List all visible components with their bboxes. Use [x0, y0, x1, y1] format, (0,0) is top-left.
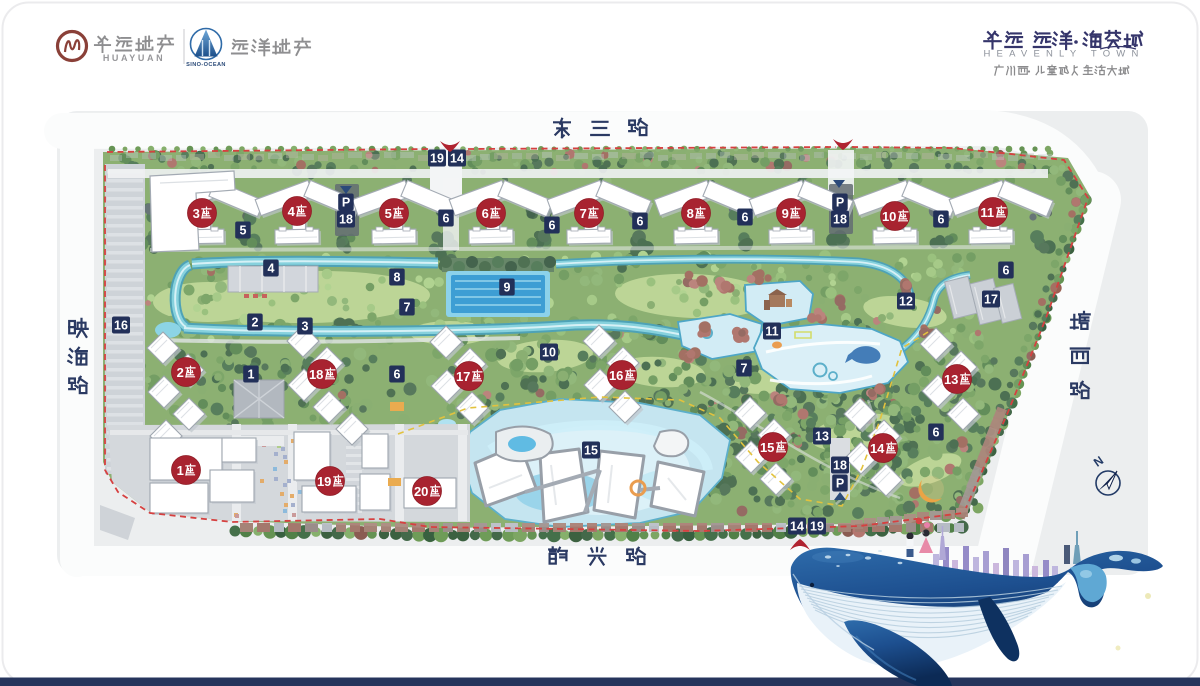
svg-text:11: 11: [980, 205, 994, 220]
svg-text:17: 17: [984, 293, 998, 307]
svg-text:SINO-OCEAN: SINO-OCEAN: [186, 62, 226, 68]
svg-text:7: 7: [741, 362, 748, 376]
svg-text:14: 14: [790, 520, 804, 534]
svg-text:6: 6: [549, 219, 556, 233]
svg-text:18: 18: [309, 367, 323, 382]
svg-text:2: 2: [252, 316, 259, 330]
svg-text:10: 10: [882, 209, 896, 224]
svg-text:6: 6: [443, 212, 450, 226]
svg-text:19: 19: [317, 474, 331, 489]
svg-text:10: 10: [542, 346, 556, 360]
svg-text:8: 8: [394, 271, 401, 285]
svg-text:4: 4: [268, 262, 275, 276]
svg-text:6: 6: [394, 368, 401, 382]
svg-text:18: 18: [833, 459, 847, 473]
svg-text:19: 19: [810, 520, 824, 534]
svg-text:2: 2: [177, 365, 184, 380]
svg-text:3: 3: [302, 320, 309, 334]
svg-text:8: 8: [687, 206, 694, 221]
svg-text:6: 6: [742, 211, 749, 225]
svg-text:14: 14: [450, 152, 464, 166]
svg-text:5: 5: [240, 224, 247, 238]
svg-text:16: 16: [609, 368, 623, 383]
svg-text:12: 12: [899, 295, 913, 309]
svg-text:11: 11: [765, 325, 778, 339]
svg-text:13: 13: [815, 430, 829, 444]
svg-text:14: 14: [870, 441, 885, 456]
svg-text:15: 15: [760, 440, 774, 455]
svg-text:18: 18: [833, 213, 847, 227]
svg-text:1: 1: [177, 463, 184, 478]
svg-text:7: 7: [404, 301, 411, 315]
svg-text:15: 15: [584, 444, 598, 458]
svg-text:P: P: [836, 196, 844, 210]
svg-text:3: 3: [193, 206, 200, 221]
svg-text:18: 18: [339, 213, 353, 227]
svg-text:16: 16: [114, 319, 128, 333]
svg-text:17: 17: [456, 369, 470, 384]
svg-text:6: 6: [933, 426, 940, 440]
svg-text:HEAVENLY TOWN: HEAVENLY TOWN: [983, 49, 1144, 60]
svg-text:9: 9: [504, 281, 511, 295]
svg-text:1: 1: [248, 368, 255, 382]
svg-text:9: 9: [782, 206, 789, 221]
svg-text:HUAYUAN: HUAYUAN: [103, 53, 165, 63]
svg-text:7: 7: [580, 206, 587, 221]
svg-text:P: P: [836, 477, 844, 491]
svg-text:6: 6: [938, 213, 945, 227]
svg-text:6: 6: [637, 215, 644, 229]
svg-text:20: 20: [414, 484, 428, 499]
svg-text:5: 5: [385, 206, 392, 221]
svg-text:P: P: [342, 196, 350, 210]
svg-text:6: 6: [1003, 264, 1010, 278]
svg-text:19: 19: [430, 152, 444, 166]
svg-text:6: 6: [482, 206, 489, 221]
svg-text:13: 13: [944, 372, 958, 387]
svg-text:4: 4: [288, 204, 296, 219]
